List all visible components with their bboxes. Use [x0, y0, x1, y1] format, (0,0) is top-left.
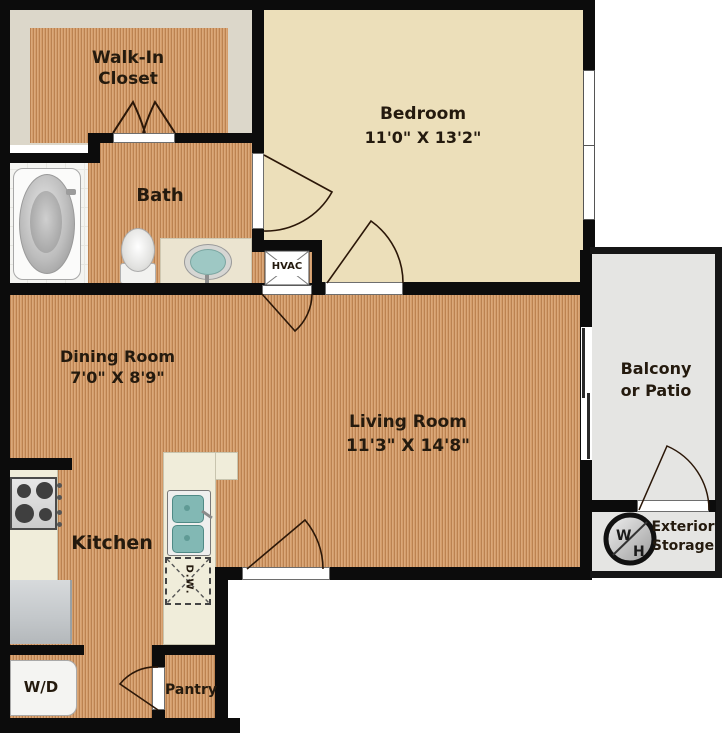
exterior-storage-line2: Storage — [645, 537, 721, 556]
stove-knob — [57, 522, 62, 527]
wall — [0, 0, 10, 733]
living-room-dimensions: 11'3" X 14'8" — [308, 434, 508, 458]
living-room-name: Living Room — [308, 410, 508, 434]
wall — [215, 578, 228, 733]
bathtub-faucet — [66, 189, 76, 195]
pantry-name: Pantry — [160, 682, 222, 698]
walk-in-closet-line2: Closet — [58, 69, 198, 90]
wall — [0, 458, 72, 470]
bedroom-dimensions: 11'0" X 13'2" — [328, 126, 518, 149]
balcony-line1: Balcony — [600, 358, 712, 380]
bathtub — [13, 168, 81, 280]
stove-burner — [39, 508, 52, 521]
kitchen-label: Kitchen — [42, 532, 182, 554]
dining-room-dimensions: 7'0" X 8'9" — [30, 367, 205, 388]
stove-knob — [57, 510, 62, 515]
sink-drain — [184, 505, 190, 511]
bedroom-living-door-opening — [325, 282, 403, 295]
dining-room-label: Dining Room 7'0" X 8'9" — [30, 346, 205, 388]
wall — [312, 240, 322, 295]
wall — [0, 718, 240, 733]
balcony-wall — [590, 247, 722, 254]
exterior-storage-label: Exterior Storage — [645, 518, 721, 556]
exterior-storage-line1: Exterior — [645, 518, 721, 537]
wall — [0, 645, 84, 655]
bath-label: Bath — [110, 185, 210, 206]
stove — [10, 477, 57, 530]
storage-door-opening — [637, 500, 709, 512]
refrigerator — [8, 580, 72, 644]
toilet-bowl — [121, 228, 155, 272]
balcony-wall — [590, 571, 722, 578]
pantry-label: Pantry — [160, 682, 222, 698]
wall — [0, 0, 592, 10]
washer-dryer-name: W/D — [12, 678, 70, 696]
walk-in-closet-label: Walk-In Closet — [58, 48, 198, 90]
bath-sink-basin — [190, 249, 226, 275]
bath-vanity — [160, 238, 252, 284]
bedroom-label: Bedroom 11'0" X 13'2" — [328, 103, 518, 149]
stove-burner — [36, 482, 53, 499]
entry-door-opening — [242, 567, 330, 580]
balcony-label: Balcony or Patio — [600, 358, 712, 402]
sliding-door-opening — [581, 327, 592, 460]
dining-room-name: Dining Room — [30, 346, 205, 367]
living-room-label: Living Room 11'3" X 14'8" — [308, 410, 508, 458]
bedroom-door-opening — [252, 153, 264, 229]
stove-knob — [57, 483, 62, 488]
wall — [0, 153, 92, 163]
bathtub-bottom — [30, 191, 62, 253]
dishwasher-name: D.W. — [184, 563, 195, 597]
bedroom-window — [583, 70, 595, 220]
sliding-door-panel — [587, 393, 590, 459]
hvac-door-opening — [262, 285, 312, 295]
hvac-name: HVAC — [266, 261, 308, 272]
kitchen-name: Kitchen — [42, 532, 182, 554]
bedroom-name: Bedroom — [328, 103, 518, 126]
hvac-label: HVAC — [266, 261, 308, 272]
stove-burner — [15, 504, 34, 523]
washer-dryer-label: W/D — [12, 678, 70, 696]
window-mullion — [584, 145, 594, 146]
stove-burner — [17, 484, 31, 498]
floor-plan: W H Walk-In Closet Bedroom 11'0" X 13'2"… — [0, 0, 726, 735]
balcony-line2: or Patio — [600, 380, 712, 402]
walk-in-closet-line1: Walk-In — [58, 48, 198, 69]
sink-drain — [184, 535, 190, 541]
stove-knob — [57, 495, 62, 500]
bath-name: Bath — [110, 185, 210, 206]
dishwasher-label: D.W. — [184, 563, 195, 597]
sliding-door-panel — [582, 328, 585, 398]
closet-door-opening — [113, 133, 175, 143]
